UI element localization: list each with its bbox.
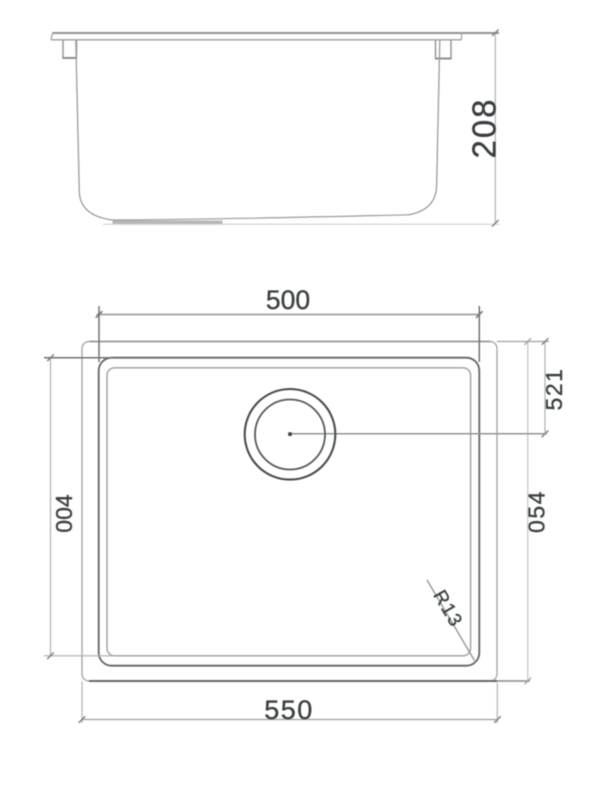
- svg-text:054: 054: [524, 490, 550, 533]
- svg-text:004: 004: [51, 494, 77, 533]
- svg-text:550: 550: [264, 695, 314, 725]
- svg-text:500: 500: [266, 285, 310, 315]
- svg-text:208: 208: [466, 97, 503, 158]
- svg-text:521: 521: [541, 368, 567, 411]
